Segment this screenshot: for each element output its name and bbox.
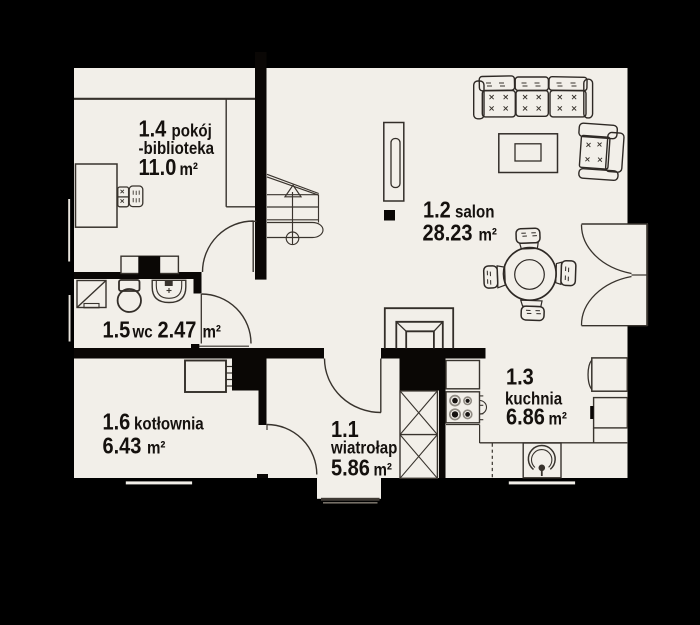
svg-text:m²: m² (479, 224, 498, 245)
svg-text:6.43: 6.43 (103, 432, 142, 459)
svg-text:m²: m² (374, 459, 393, 480)
svg-text:11.0: 11.0 (139, 154, 177, 181)
svg-text:m²: m² (203, 321, 222, 342)
svg-text:28.23: 28.23 (423, 219, 473, 246)
svg-text:2.47: 2.47 (158, 316, 197, 343)
svg-text:1.5: 1.5 (103, 316, 131, 343)
svg-text:1.3: 1.3 (506, 363, 534, 390)
svg-text:1.6: 1.6 (103, 408, 131, 435)
svg-text:m²: m² (147, 437, 166, 458)
svg-text:wc: wc (132, 321, 153, 342)
svg-text:5.86: 5.86 (331, 454, 370, 481)
svg-text:m²: m² (549, 408, 568, 429)
svg-text:kotłownia: kotłownia (134, 413, 204, 434)
svg-text:m²: m² (180, 159, 199, 180)
svg-text:6.86: 6.86 (506, 403, 545, 430)
